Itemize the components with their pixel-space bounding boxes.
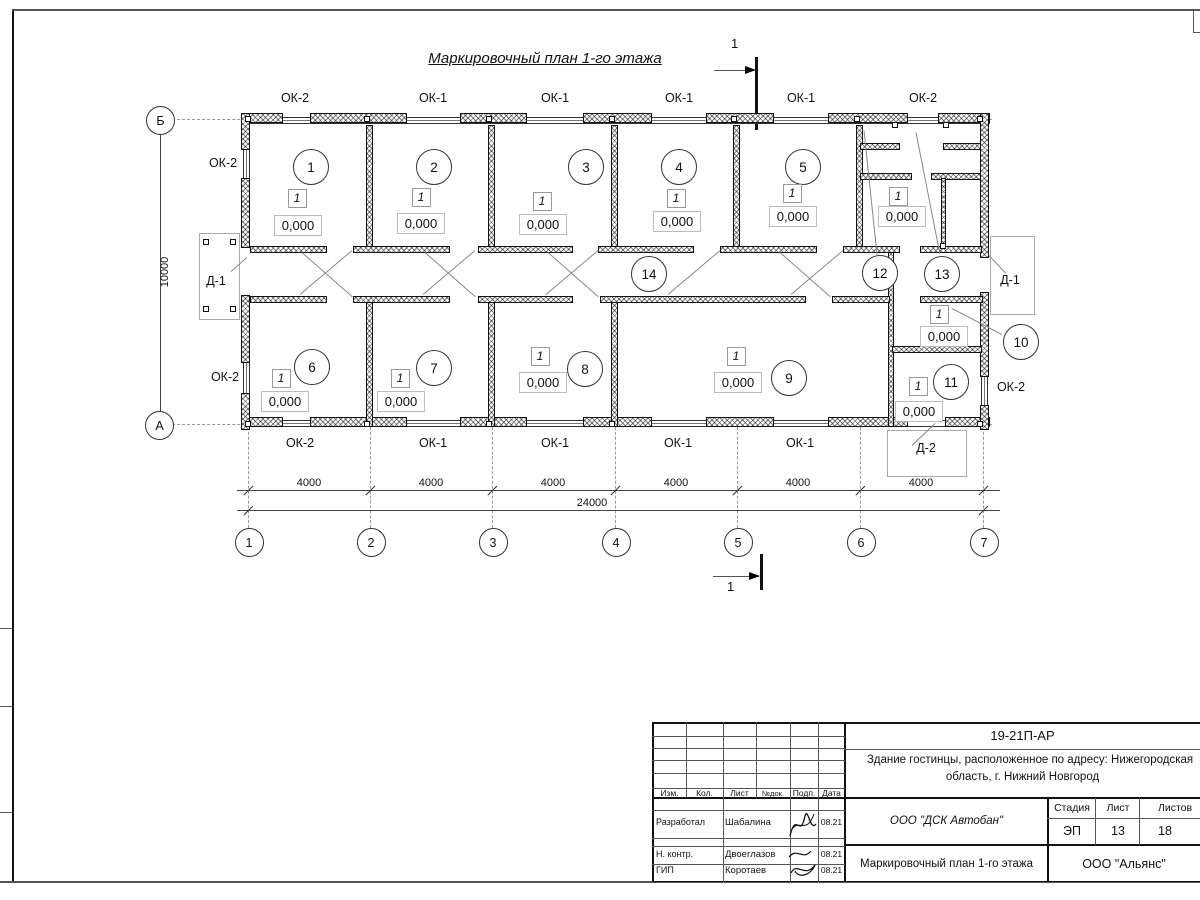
- titleblock-line: [652, 881, 1200, 883]
- dim-line: [237, 510, 1000, 511]
- door-label-bottom: Д-2: [906, 441, 946, 455]
- window-label-top: ОК-1: [776, 91, 826, 105]
- titleblock-name: Коротаев: [725, 864, 789, 876]
- wall-segment: [366, 296, 373, 427]
- titleblock-role: ГИП: [656, 864, 722, 876]
- titleblock-line: [723, 722, 724, 798]
- wall-jamb: [892, 122, 898, 128]
- titleblock-line: [652, 736, 845, 737]
- titleblock-sheets-value: 18: [1140, 819, 1190, 843]
- window-label-bottom: ОК-1: [775, 436, 825, 450]
- window-glazing: [281, 423, 310, 424]
- wall-segment: [720, 246, 817, 253]
- elevation-box: 0,000: [653, 211, 701, 232]
- wall-jamb: [977, 421, 983, 427]
- wall-segment: [366, 125, 373, 252]
- room-number-circle: 3: [568, 149, 604, 185]
- wall-segment: [843, 246, 900, 253]
- wall-segment: [353, 246, 450, 253]
- window-label-bottom: ОК-1: [408, 436, 458, 450]
- elevation-box: 0,000: [920, 326, 968, 347]
- window-label-top: ОК-1: [530, 91, 580, 105]
- porch-column: [203, 306, 209, 312]
- room-type-square: 1: [667, 189, 686, 208]
- frame-tick: [0, 812, 12, 813]
- wall-jamb: [977, 116, 983, 122]
- room-type-square: 1: [909, 377, 928, 396]
- wall-segment: [353, 296, 450, 303]
- elevation-box: 0,000: [878, 206, 926, 227]
- window-label-top: ОК-2: [898, 91, 948, 105]
- signature: [787, 806, 819, 842]
- elevation-box: 0,000: [377, 391, 425, 412]
- window-label-bottom: ОК-2: [275, 436, 325, 450]
- axis-bubble-b: Б: [146, 106, 175, 135]
- window-glazing: [984, 377, 985, 405]
- wall-segment: [943, 143, 981, 150]
- wall-segment: [611, 296, 618, 427]
- titleblock-line: [844, 749, 1200, 750]
- titleblock-line: [686, 722, 687, 798]
- wall-segment: [706, 417, 774, 427]
- porch-column: [230, 306, 236, 312]
- porch-column: [230, 239, 236, 245]
- room-number-circle: 1: [293, 149, 329, 185]
- titleblock-object-line2: область, г. Нижний Новгород: [845, 769, 1200, 784]
- titleblock-line: [790, 722, 791, 798]
- frame-left: [12, 9, 14, 882]
- wall-jamb: [245, 116, 251, 122]
- wall-segment: [250, 296, 327, 303]
- grid-bubble: 5: [724, 528, 753, 557]
- grid-bubble: 2: [357, 528, 386, 557]
- section-label-bottom: 1: [727, 579, 734, 594]
- elevation-box: 0,000: [519, 214, 567, 235]
- frame-top: [12, 9, 1200, 11]
- titleblock-stage-label: Стадия: [1048, 799, 1096, 816]
- wall-segment: [598, 246, 694, 253]
- grid-line: [370, 427, 371, 528]
- room-type-square: 1: [533, 192, 552, 211]
- titleblock-sheet-label: Лист: [1096, 799, 1140, 816]
- wall-jamb: [854, 116, 860, 122]
- wall-jamb: [943, 122, 949, 128]
- titleblock-date: 08.21: [818, 864, 845, 876]
- axis-bubble-a: А: [145, 411, 174, 440]
- titleblock-line: [652, 773, 845, 774]
- titleblock-name: Двоеглазов: [725, 848, 789, 860]
- window-glazing: [774, 423, 828, 424]
- room-type-square: 1: [412, 188, 431, 207]
- leader-line: [791, 250, 844, 295]
- grid-line: [248, 427, 249, 528]
- signature: [787, 845, 819, 881]
- titleblock-org: ООО "ДСК Автобан": [845, 806, 1048, 836]
- room-type-square: 1: [272, 369, 291, 388]
- titleblock-line: [652, 722, 654, 882]
- titleblock-header-col: Подп.: [790, 788, 818, 798]
- room-number-circle: 13: [924, 256, 960, 292]
- dim-vertical-label: 10000: [159, 242, 173, 302]
- room-number-circle: 9: [771, 360, 807, 396]
- room-type-square: 1: [930, 305, 949, 324]
- elevation-box: 0,000: [397, 213, 445, 234]
- room-number-circle: 12: [862, 255, 898, 291]
- elevation-box: 0,000: [895, 401, 943, 422]
- wall-segment: [250, 246, 327, 253]
- grid-line: [737, 427, 738, 528]
- dim-line: [237, 490, 1000, 491]
- door-label-left: Д-1: [196, 274, 236, 288]
- grid-bubble: 3: [479, 528, 508, 557]
- wall-segment: [460, 113, 527, 123]
- wall-segment: [920, 246, 982, 253]
- frame-tick: [0, 628, 12, 629]
- door-label-right: Д-1: [990, 273, 1030, 287]
- wall-segment: [706, 113, 774, 123]
- leader-line: [916, 132, 941, 254]
- leader-line: [780, 252, 831, 297]
- grid-bubble: 7: [970, 528, 999, 557]
- frame-corner-box: [1193, 9, 1194, 33]
- wall-segment: [478, 296, 573, 303]
- elevation-box: 0,000: [519, 372, 567, 393]
- section-label-top: 1: [731, 36, 738, 51]
- frame-corner-box: [1193, 32, 1200, 33]
- window-label-left-upper: ОК-2: [200, 156, 246, 170]
- wall-segment: [488, 125, 495, 252]
- window-label-right: ОК-2: [988, 380, 1034, 394]
- window-label-top: ОК-1: [654, 91, 704, 105]
- elevation-box: 0,000: [714, 372, 762, 393]
- titleblock-line: [652, 760, 845, 761]
- room-number-circle: 4: [661, 149, 697, 185]
- wall-segment: [310, 113, 407, 123]
- wall-segment: [241, 295, 250, 363]
- wall-segment: [931, 173, 981, 180]
- grid-line: [860, 427, 861, 528]
- titleblock-stage-value: ЭП: [1048, 819, 1096, 843]
- wall-jamb: [364, 421, 370, 427]
- room-type-square: 1: [727, 347, 746, 366]
- wall-jamb: [245, 421, 251, 427]
- grid-line: [492, 427, 493, 528]
- window-glazing: [652, 120, 706, 121]
- wall-jamb: [364, 116, 370, 122]
- wall-segment: [733, 125, 740, 252]
- titleblock-line: [652, 748, 845, 749]
- titleblock-sheets-label: Листов: [1140, 799, 1200, 816]
- wall-jamb: [940, 243, 946, 249]
- wall-segment: [600, 296, 806, 303]
- wall-jamb: [486, 421, 492, 427]
- titleblock-role: Н. контр.: [656, 848, 722, 860]
- window-glazing: [527, 120, 583, 121]
- titleblock-line: [723, 798, 724, 882]
- wall-segment: [920, 296, 983, 303]
- titleblock-header-col: Дата: [818, 788, 845, 798]
- room-number-circle: 5: [785, 149, 821, 185]
- wall-segment: [980, 292, 989, 377]
- titleblock-header-col: №док.: [756, 788, 790, 798]
- grid-bubble: 4: [602, 528, 631, 557]
- frame-tick: [0, 706, 12, 707]
- titleblock-object-line1: Здание гостинцы, расположенное по адресу…: [845, 752, 1200, 767]
- titleblock-header-col: Кол.: [686, 788, 723, 798]
- elevation-box: 0,000: [769, 206, 817, 227]
- room-number-circle: 11: [933, 364, 969, 400]
- dim-bay-label: 4000: [528, 477, 578, 489]
- dim-total-label: 24000: [562, 497, 622, 509]
- wall-segment: [941, 178, 946, 248]
- wall-segment: [892, 346, 982, 353]
- window-glazing: [652, 423, 706, 424]
- section-arrow-icon-top: [745, 66, 756, 74]
- titleblock-date: 08.21: [818, 848, 845, 860]
- section-arrow-icon-bottom: [749, 572, 760, 580]
- room-number-circle: 14: [631, 256, 667, 292]
- titleblock-name: Шабалина: [725, 816, 789, 828]
- titleblock-sheet-title: Маркировочный план 1-го этажа: [845, 847, 1048, 880]
- grid-bubble: 1: [235, 528, 264, 557]
- titleblock-line: [818, 722, 819, 798]
- window-glazing: [407, 120, 460, 121]
- titleblock-doc-code: 19-21П-АР: [845, 725, 1200, 745]
- porch-column: [203, 239, 209, 245]
- leader-line: [302, 252, 353, 297]
- window-glazing: [246, 150, 247, 178]
- grid-line: [615, 427, 616, 528]
- titleblock-line: [756, 722, 757, 798]
- titleblock-sheet-value: 13: [1096, 819, 1140, 843]
- room-type-square: 1: [531, 347, 550, 366]
- room-number-circle: 8: [567, 351, 603, 387]
- elevation-box: 0,000: [274, 215, 322, 236]
- window-glazing: [281, 120, 310, 121]
- titleblock-header-col: Лист: [723, 788, 756, 798]
- room-number-circle: 7: [416, 350, 452, 386]
- window-label-left-lower: ОК-2: [202, 370, 248, 384]
- wall-segment: [832, 296, 890, 303]
- wall-jamb: [609, 116, 615, 122]
- leader-line: [548, 252, 599, 297]
- wall-segment: [241, 178, 250, 248]
- wall-segment: [583, 113, 652, 123]
- titleblock-line: [652, 722, 1200, 724]
- dim-bay-label: 4000: [284, 477, 334, 489]
- window-label-bottom: ОК-1: [530, 436, 580, 450]
- wall-jamb: [486, 116, 492, 122]
- titleblock-date: 08.21: [818, 816, 845, 828]
- wall-jamb: [731, 116, 737, 122]
- window-label-top: ОК-1: [408, 91, 458, 105]
- window-label-top: ОК-2: [270, 91, 320, 105]
- room-type-square: 1: [288, 189, 307, 208]
- leader-line: [425, 252, 476, 297]
- dim-bay-label: 4000: [773, 477, 823, 489]
- window-label-bottom: ОК-1: [653, 436, 703, 450]
- leader-line: [668, 250, 721, 295]
- titleblock-company: ООО "Альянс": [1048, 847, 1200, 880]
- dim-bay-label: 4000: [651, 477, 701, 489]
- room-number-circle: 2: [416, 149, 452, 185]
- room-type-square: 1: [391, 369, 410, 388]
- window-glazing: [527, 423, 583, 424]
- wall-segment: [611, 125, 618, 252]
- titleblock-role: Разработал: [656, 816, 722, 828]
- drawing-sheet: Маркировочный план 1-го этажа 1 1 10000 …: [0, 0, 1200, 900]
- wall-segment: [488, 296, 495, 427]
- elevation-box: 0,000: [261, 391, 309, 412]
- room-type-square: 1: [783, 184, 802, 203]
- wall-segment: [980, 113, 989, 258]
- window-glazing: [407, 423, 460, 424]
- room-number-circle: 6: [294, 349, 330, 385]
- room-number-circle: 10: [1003, 324, 1039, 360]
- titleblock-header-col: Изм.: [653, 788, 686, 798]
- grid-bubble: 6: [847, 528, 876, 557]
- grid-line: [983, 427, 984, 528]
- wall-jamb: [609, 421, 615, 427]
- titleblock-line: [844, 844, 1200, 846]
- page-title: Маркировочный план 1-го этажа: [370, 50, 720, 67]
- room-type-square: 1: [889, 187, 908, 206]
- dim-bay-label: 4000: [406, 477, 456, 489]
- window-glazing: [774, 120, 828, 121]
- window-glazing: [908, 120, 938, 121]
- wall-segment: [310, 417, 407, 427]
- wall-segment: [478, 246, 573, 253]
- dim-bay-label: 4000: [896, 477, 946, 489]
- section-line-bottom: [760, 554, 763, 590]
